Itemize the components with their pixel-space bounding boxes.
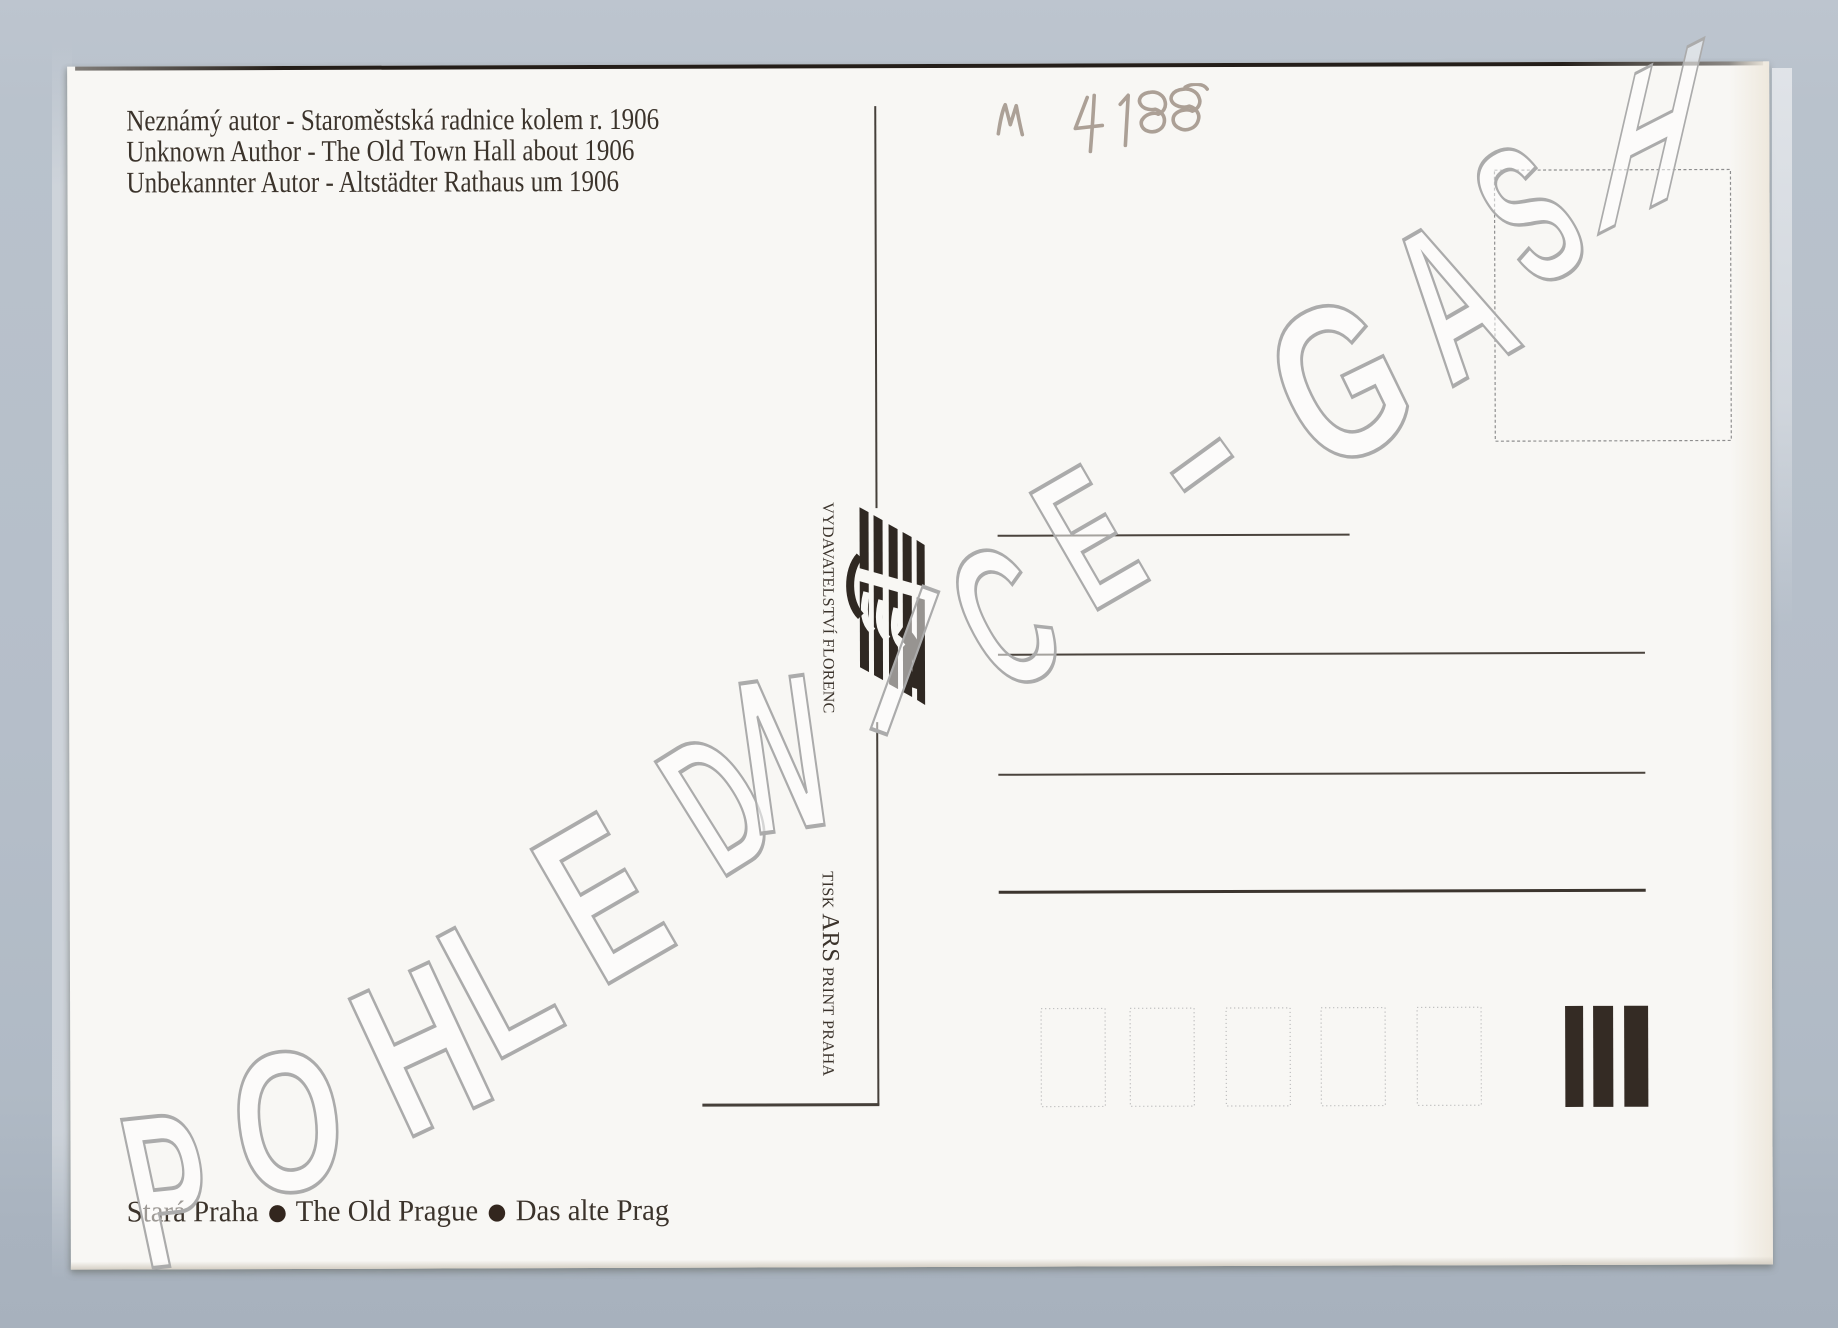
svg-text:O: O — [220, 1004, 355, 1239]
svg-text:H: H — [1578, 0, 1723, 289]
svg-text:P: P — [103, 1065, 235, 1315]
